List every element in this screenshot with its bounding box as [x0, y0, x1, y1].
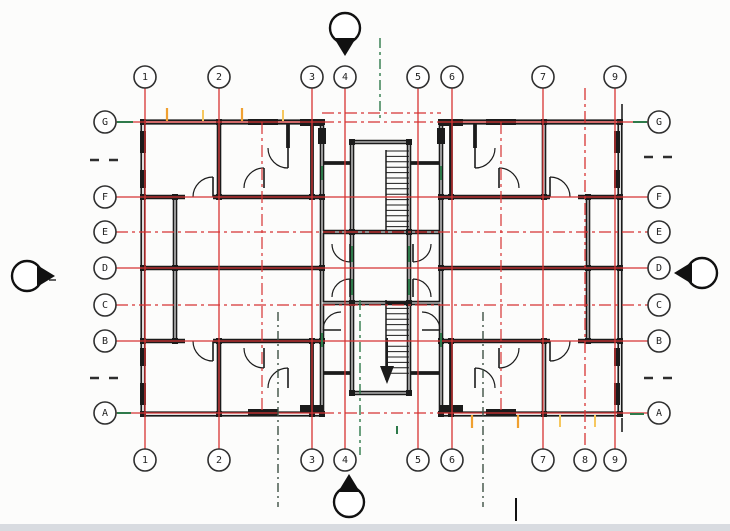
grid-bubble-bottom-2: 2 [208, 449, 230, 471]
column-node [406, 139, 412, 145]
grid-bubble-left-E: E [94, 221, 116, 243]
grid-bubble-right-B: B [648, 330, 670, 352]
column-node [448, 411, 454, 417]
grid-bubble-right-A-label: A [656, 408, 662, 419]
grid-bubble-top-9: 9 [604, 66, 626, 88]
grid-bubble-top-5: 5 [407, 66, 429, 88]
column-node [349, 390, 355, 396]
grid-bubble-top-6: 6 [441, 66, 463, 88]
grid-bubble-right-E: E [648, 221, 670, 243]
wall-chunk [318, 128, 326, 144]
grid-bubble-right-C: C [648, 294, 670, 316]
grid-bubble-left-B-label: B [102, 336, 108, 347]
grid-bubble-bottom-6-label: 6 [449, 455, 455, 466]
grid-bubble-right-C-label: C [656, 300, 662, 311]
grid-bubble-right-F-label: F [656, 192, 662, 203]
grid-bubble-left-D: D [94, 257, 116, 279]
grid-bubble-right-F: F [648, 186, 670, 208]
grid-bubble-bottom-5-label: 5 [415, 455, 421, 466]
grid-bubble-top-1-label: 1 [142, 72, 148, 83]
floor-plan-canvas: 11223344556677899GGFFEEDDCCBBAA [0, 0, 730, 531]
grid-bubble-right-E-label: E [656, 227, 662, 238]
grid-bubble-bottom-7: 7 [532, 449, 554, 471]
grid-bubble-left-B: B [94, 330, 116, 352]
grid-bubble-left-A-label: A [102, 408, 108, 419]
column-node [319, 411, 325, 417]
grid-bubble-left-D-label: D [102, 263, 108, 274]
grid-bubble-left-A: A [94, 402, 116, 424]
grid-bubble-left-G: G [94, 111, 116, 133]
grid-bubble-top-2: 2 [208, 66, 230, 88]
floor-plan-svg: 11223344556677899GGFFEEDDCCBBAA [0, 0, 730, 531]
grid-bubble-bottom-1: 1 [134, 449, 156, 471]
grid-bubble-top-1: 1 [134, 66, 156, 88]
grid-bubble-bottom-3: 3 [301, 449, 323, 471]
grid-bubble-bottom-9-label: 9 [612, 455, 618, 466]
wall-chunk [248, 409, 278, 415]
grid-bubble-top-6-label: 6 [449, 72, 455, 83]
grid-bubble-top-7-label: 7 [540, 72, 546, 83]
grid-bubble-bottom-3-label: 3 [309, 455, 315, 466]
grid-bubble-left-F-label: F [102, 192, 108, 203]
column-node [541, 411, 547, 417]
column-node [617, 411, 623, 417]
grid-bubble-bottom-4: 4 [334, 449, 356, 471]
grid-bubble-bottom-8-label: 8 [582, 455, 588, 466]
grid-bubble-right-A: A [648, 402, 670, 424]
grid-bubble-top-5-label: 5 [415, 72, 421, 83]
grid-bubble-top-9-label: 9 [612, 72, 618, 83]
grid-bubble-top-3: 3 [301, 66, 323, 88]
column-node [349, 139, 355, 145]
grid-bubble-top-4: 4 [334, 66, 356, 88]
grid-bubble-top-7: 7 [532, 66, 554, 88]
footer-strip [0, 524, 730, 531]
grid-bubble-bottom-9: 9 [604, 449, 626, 471]
grid-bubble-top-3-label: 3 [309, 72, 315, 83]
column-node [406, 390, 412, 396]
grid-bubble-left-C-label: C [102, 300, 108, 311]
grid-bubble-bottom-2-label: 2 [216, 455, 222, 466]
grid-bubble-bottom-7-label: 7 [540, 455, 546, 466]
grid-bubble-bottom-8: 8 [574, 449, 596, 471]
grid-bubble-bottom-6: 6 [441, 449, 463, 471]
grid-bubble-bottom-4-label: 4 [342, 455, 348, 466]
grid-bubble-left-C: C [94, 294, 116, 316]
grid-bubble-top-4-label: 4 [342, 72, 348, 83]
grid-bubble-right-G-label: G [656, 117, 662, 128]
grid-bubble-left-E-label: E [102, 227, 108, 238]
wall-chunk [437, 128, 445, 144]
grid-bubble-bottom-5: 5 [407, 449, 429, 471]
grid-bubble-left-G-label: G [102, 117, 108, 128]
grid-bubble-right-G: G [648, 111, 670, 133]
wall-chunk [439, 405, 463, 412]
grid-bubble-right-D-label: D [656, 263, 662, 274]
grid-bubble-top-2-label: 2 [216, 72, 222, 83]
grid-bubble-right-B-label: B [656, 336, 662, 347]
grid-bubble-right-D: D [648, 257, 670, 279]
column-node [438, 411, 444, 417]
grid-bubble-bottom-1-label: 1 [142, 455, 148, 466]
grid-bubble-left-F: F [94, 186, 116, 208]
